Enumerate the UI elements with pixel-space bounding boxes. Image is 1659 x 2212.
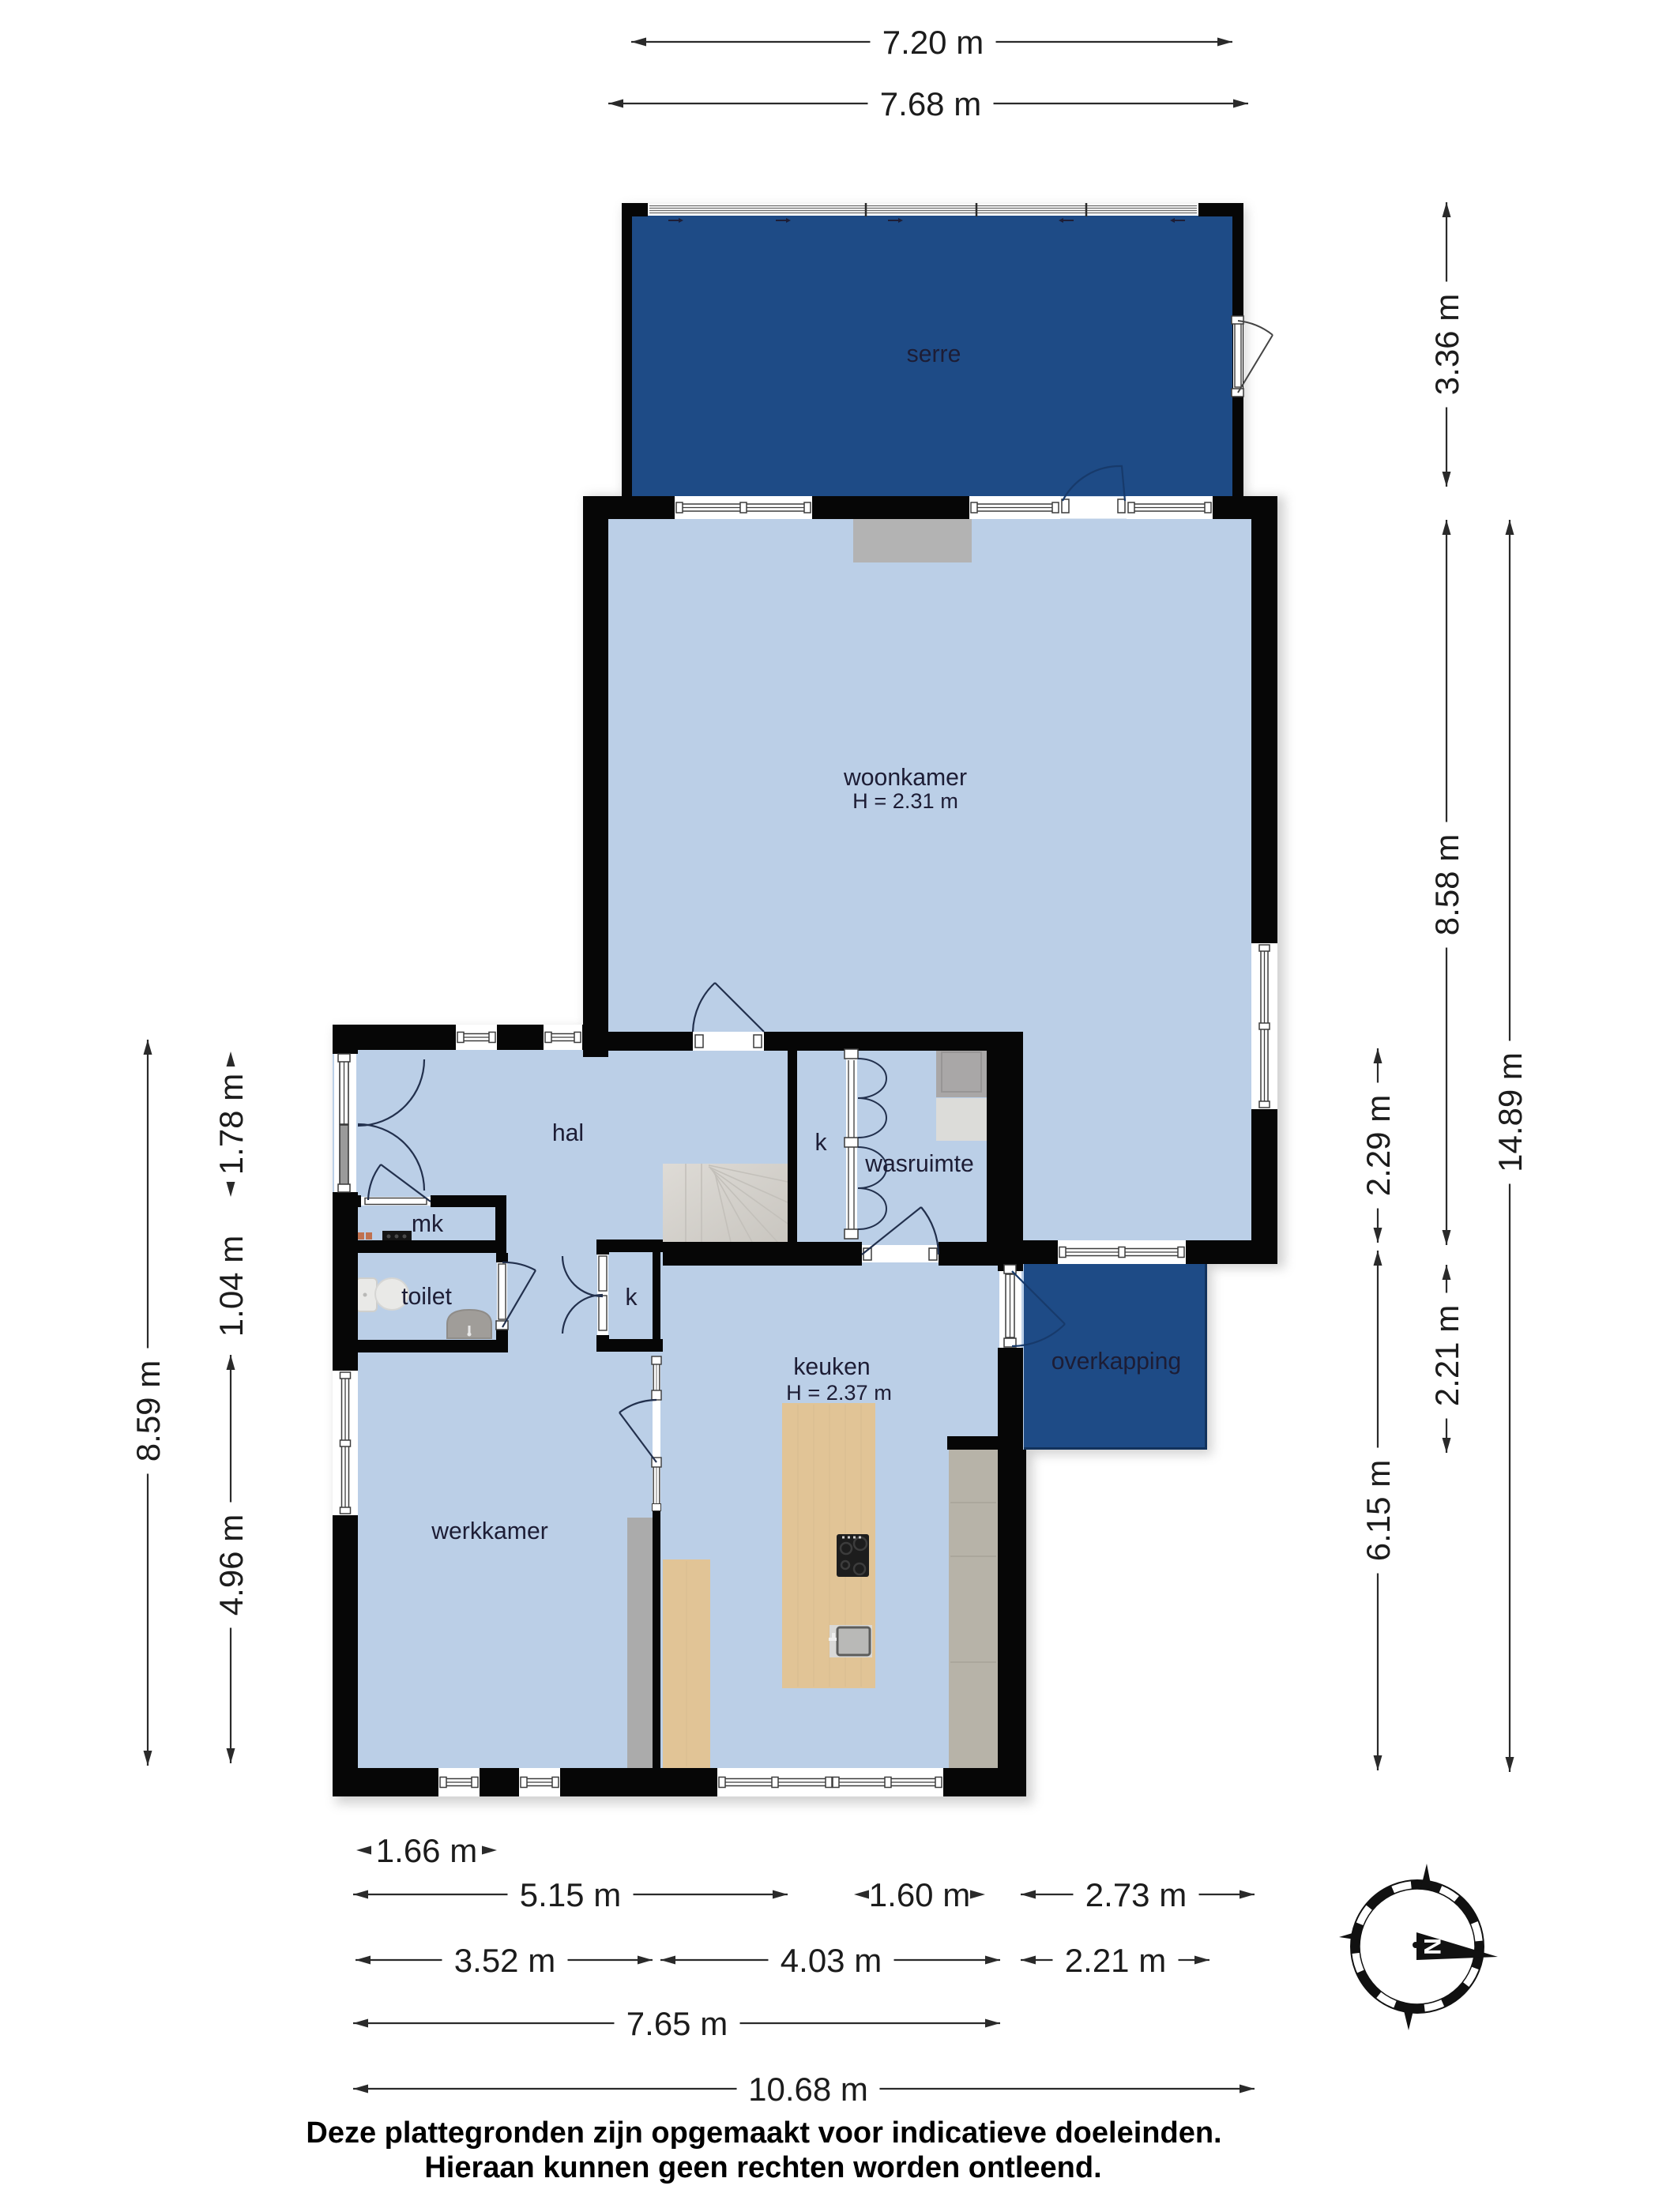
svg-text:1.04 m: 1.04 m bbox=[213, 1236, 250, 1337]
svg-text:7.68 m: 7.68 m bbox=[880, 85, 981, 122]
svg-text:1.78 m: 1.78 m bbox=[213, 1074, 250, 1175]
svg-text:7.65 m: 7.65 m bbox=[626, 2005, 728, 2042]
svg-text:2.73 m: 2.73 m bbox=[1085, 1876, 1187, 1913]
svg-text:5.15 m: 5.15 m bbox=[520, 1876, 621, 1913]
svg-text:wasruimte: wasruimte bbox=[864, 1151, 974, 1177]
svg-text:10.68 m: 10.68 m bbox=[748, 2071, 868, 2108]
svg-text:2.21 m: 2.21 m bbox=[1428, 1305, 1465, 1406]
svg-text:Deze plattegronden zijn opgema: Deze plattegronden zijn opgemaakt voor i… bbox=[306, 2116, 1221, 2150]
svg-text:8.58 m: 8.58 m bbox=[1428, 834, 1465, 935]
svg-text:1.60 m: 1.60 m bbox=[869, 1876, 970, 1913]
svg-text:toilet: toilet bbox=[401, 1284, 452, 1310]
svg-text:H = 2.37 m: H = 2.37 m bbox=[786, 1380, 892, 1405]
svg-text:3.36 m: 3.36 m bbox=[1428, 294, 1465, 395]
svg-text:Hieraan kunnen geen rechten wo: Hieraan kunnen geen rechten worden ontle… bbox=[424, 2151, 1101, 2184]
svg-text:overkapping: overkapping bbox=[1051, 1349, 1181, 1375]
svg-text:woonkamer: woonkamer bbox=[843, 765, 967, 791]
svg-text:k: k bbox=[814, 1130, 827, 1156]
svg-text:werkkamer: werkkamer bbox=[431, 1518, 548, 1544]
svg-text:hal: hal bbox=[552, 1120, 584, 1146]
svg-text:4.03 m: 4.03 m bbox=[781, 1942, 882, 1979]
svg-text:N: N bbox=[1419, 1938, 1445, 1955]
svg-text:8.59 m: 8.59 m bbox=[130, 1360, 167, 1461]
svg-text:mk: mk bbox=[412, 1211, 444, 1237]
svg-text:14.89 m: 14.89 m bbox=[1492, 1052, 1529, 1172]
svg-text:serre: serre bbox=[907, 341, 961, 367]
svg-text:k: k bbox=[625, 1285, 638, 1311]
svg-text:4.96 m: 4.96 m bbox=[213, 1514, 250, 1616]
svg-text:2.29 m: 2.29 m bbox=[1360, 1095, 1397, 1196]
svg-text:1.66 m: 1.66 m bbox=[376, 1832, 477, 1869]
svg-text:2.21 m: 2.21 m bbox=[1065, 1942, 1166, 1979]
svg-text:keuken: keuken bbox=[793, 1354, 870, 1380]
svg-text:6.15 m: 6.15 m bbox=[1360, 1460, 1397, 1561]
svg-text:7.20 m: 7.20 m bbox=[882, 24, 984, 61]
svg-text:H = 2.31 m: H = 2.31 m bbox=[852, 788, 958, 813]
svg-text:3.52 m: 3.52 m bbox=[454, 1942, 555, 1979]
